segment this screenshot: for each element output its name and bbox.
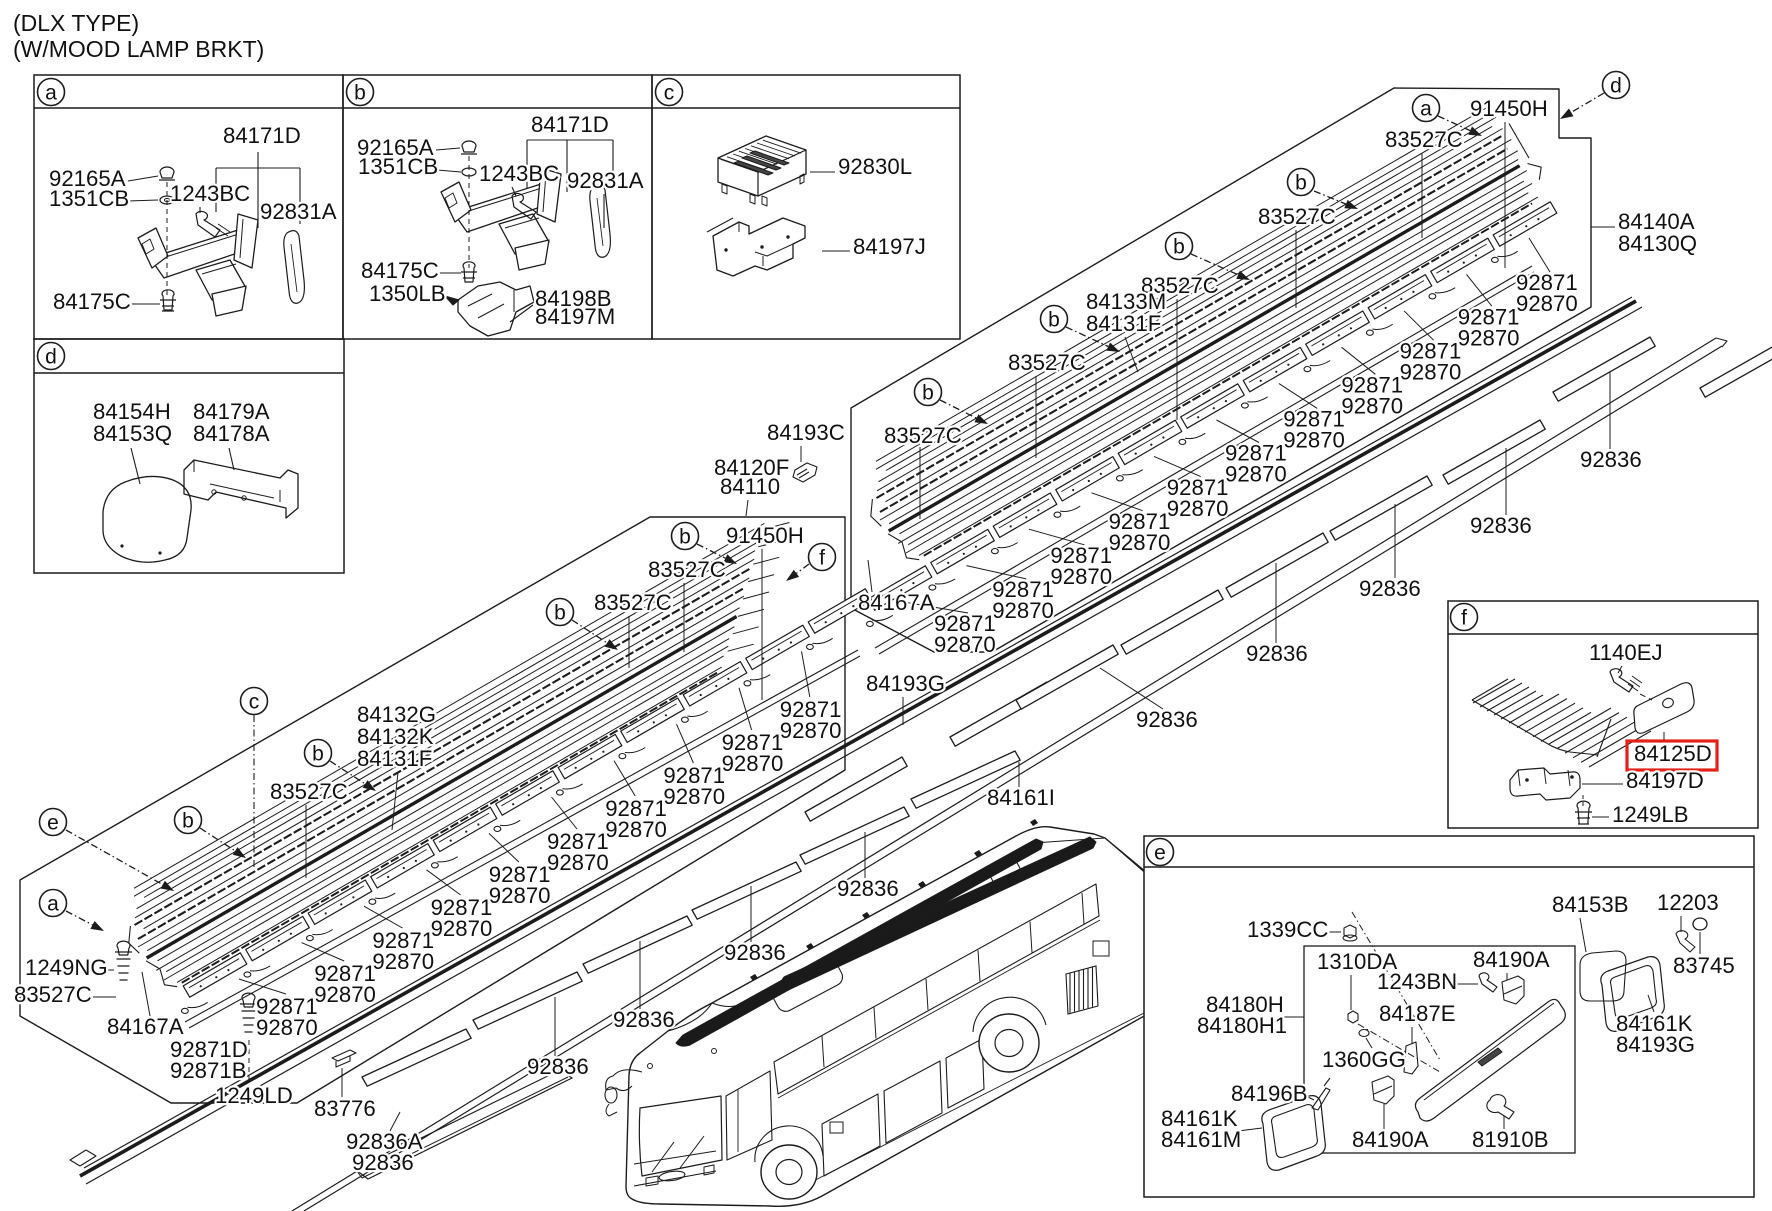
svg-text:84125D: 84125D <box>1634 741 1712 766</box>
svg-text:b: b <box>1048 309 1060 332</box>
svg-text:1339CC: 1339CC <box>1247 917 1328 942</box>
svg-text:83527C: 83527C <box>648 557 726 582</box>
svg-text:83745: 83745 <box>1673 953 1735 978</box>
svg-text:b: b <box>679 526 691 549</box>
svg-text:84197M: 84197M <box>535 304 615 329</box>
svg-text:b: b <box>182 810 194 833</box>
svg-text:1249LB: 1249LB <box>1612 802 1689 827</box>
svg-text:84197D: 84197D <box>1626 768 1704 793</box>
svg-text:83527C: 83527C <box>270 779 348 804</box>
svg-text:a: a <box>45 82 57 105</box>
svg-text:84193G: 84193G <box>866 671 945 696</box>
svg-text:92870: 92870 <box>1167 496 1229 521</box>
svg-text:92870: 92870 <box>934 632 996 657</box>
svg-text:92870: 92870 <box>1458 325 1520 350</box>
svg-text:e: e <box>47 812 59 835</box>
svg-text:b: b <box>922 382 934 405</box>
svg-text:1243BC: 1243BC <box>479 161 559 186</box>
svg-text:92836: 92836 <box>837 876 899 901</box>
svg-text:92870: 92870 <box>1516 291 1578 316</box>
svg-text:1249LD: 1249LD <box>215 1083 293 1108</box>
svg-text:84193G: 84193G <box>1616 1032 1695 1057</box>
svg-text:e: e <box>1154 842 1166 865</box>
svg-text:1351CB: 1351CB <box>358 154 438 179</box>
svg-text:d: d <box>1610 75 1622 98</box>
svg-text:(DLX TYPE): (DLX TYPE) <box>13 10 139 36</box>
svg-text:a: a <box>47 893 59 916</box>
svg-text:92870: 92870 <box>1050 564 1112 589</box>
svg-text:84190A: 84190A <box>1473 947 1550 972</box>
svg-text:84167A: 84167A <box>858 590 935 615</box>
svg-text:92870: 92870 <box>256 1015 318 1040</box>
svg-text:84161I: 84161I <box>987 785 1055 810</box>
svg-text:84187E: 84187E <box>1379 1001 1456 1026</box>
svg-text:f: f <box>819 547 825 570</box>
svg-text:84171D: 84171D <box>223 123 301 148</box>
svg-text:92836: 92836 <box>724 940 786 965</box>
svg-text:92870: 92870 <box>314 982 376 1007</box>
svg-text:83527C: 83527C <box>594 590 672 615</box>
svg-text:83776: 83776 <box>314 1096 376 1121</box>
svg-text:1350LB: 1350LB <box>369 281 446 306</box>
svg-text:b: b <box>354 82 366 105</box>
svg-text:1360GG: 1360GG <box>1322 1047 1406 1072</box>
svg-text:84193C: 84193C <box>767 420 845 445</box>
svg-text:12203: 12203 <box>1657 890 1719 915</box>
svg-text:84178A: 84178A <box>193 421 270 446</box>
svg-text:91450H: 91450H <box>726 523 804 548</box>
svg-text:1249NG: 1249NG <box>25 955 108 980</box>
svg-text:84180H1: 84180H1 <box>1197 1013 1287 1038</box>
svg-text:92836: 92836 <box>527 1054 589 1079</box>
svg-text:84175C: 84175C <box>53 289 131 314</box>
svg-text:92870: 92870 <box>992 598 1054 623</box>
svg-text:92836: 92836 <box>1580 447 1642 472</box>
svg-text:b: b <box>312 743 324 766</box>
svg-text:84131F: 84131F <box>1086 311 1161 336</box>
svg-text:1243BC: 1243BC <box>170 181 250 206</box>
svg-text:92870: 92870 <box>547 850 609 875</box>
svg-text:92870: 92870 <box>1341 394 1403 419</box>
svg-text:84161M: 84161M <box>1161 1127 1241 1152</box>
svg-text:1351CB: 1351CB <box>49 186 129 211</box>
svg-text:(W/MOOD LAMP BRKT): (W/MOOD LAMP BRKT) <box>13 36 264 62</box>
svg-text:1140EJ: 1140EJ <box>1589 640 1663 665</box>
svg-text:a: a <box>1420 98 1432 121</box>
svg-text:92870: 92870 <box>1225 462 1287 487</box>
svg-text:83527C: 83527C <box>884 423 962 448</box>
svg-text:92870: 92870 <box>780 718 842 743</box>
svg-text:b: b <box>1295 172 1307 195</box>
svg-text:f: f <box>1461 607 1467 630</box>
svg-text:83527C: 83527C <box>1008 350 1086 375</box>
svg-text:84167A: 84167A <box>107 1014 184 1039</box>
svg-text:92836: 92836 <box>1136 707 1198 732</box>
svg-text:92870: 92870 <box>605 817 667 842</box>
svg-text:92870: 92870 <box>722 751 784 776</box>
svg-text:92870: 92870 <box>431 916 493 941</box>
svg-text:84131F: 84131F <box>357 746 432 771</box>
svg-text:83527C: 83527C <box>1385 127 1463 152</box>
svg-text:83527C: 83527C <box>14 982 92 1007</box>
svg-text:83527C: 83527C <box>1258 204 1336 229</box>
svg-text:1243BN: 1243BN <box>1377 969 1457 994</box>
svg-text:84190A: 84190A <box>1352 1127 1429 1152</box>
svg-text:84110: 84110 <box>720 474 780 499</box>
svg-text:84130Q: 84130Q <box>1618 231 1697 256</box>
svg-text:84197J: 84197J <box>853 234 926 259</box>
svg-text:92870: 92870 <box>1283 428 1345 453</box>
svg-text:b: b <box>1173 236 1185 259</box>
svg-text:c: c <box>664 82 675 105</box>
svg-text:92836: 92836 <box>1470 513 1532 538</box>
svg-text:c: c <box>249 691 260 714</box>
svg-text:b: b <box>554 602 566 625</box>
svg-text:92870: 92870 <box>372 949 434 974</box>
svg-text:92870: 92870 <box>489 883 551 908</box>
svg-text:81910B: 81910B <box>1472 1127 1549 1152</box>
svg-text:84171D: 84171D <box>531 112 609 137</box>
svg-text:84153Q: 84153Q <box>93 421 172 446</box>
svg-text:92830L: 92830L <box>838 154 912 179</box>
svg-text:92836: 92836 <box>1359 576 1421 601</box>
svg-text:92836: 92836 <box>352 1150 414 1175</box>
svg-text:91450H: 91450H <box>1470 96 1548 121</box>
svg-text:92836: 92836 <box>613 1007 675 1032</box>
svg-text:d: d <box>45 346 57 369</box>
svg-text:92831A: 92831A <box>260 199 337 224</box>
svg-text:84153B: 84153B <box>1552 892 1629 917</box>
svg-text:84175C: 84175C <box>361 258 439 283</box>
svg-text:92870: 92870 <box>1400 359 1462 384</box>
svg-text:92836: 92836 <box>1246 641 1308 666</box>
svg-text:92870: 92870 <box>1109 530 1171 555</box>
svg-text:92871B: 92871B <box>170 1058 247 1083</box>
svg-text:92831A: 92831A <box>567 168 644 193</box>
svg-text:84196B: 84196B <box>1231 1081 1308 1106</box>
svg-text:92870: 92870 <box>663 784 725 809</box>
